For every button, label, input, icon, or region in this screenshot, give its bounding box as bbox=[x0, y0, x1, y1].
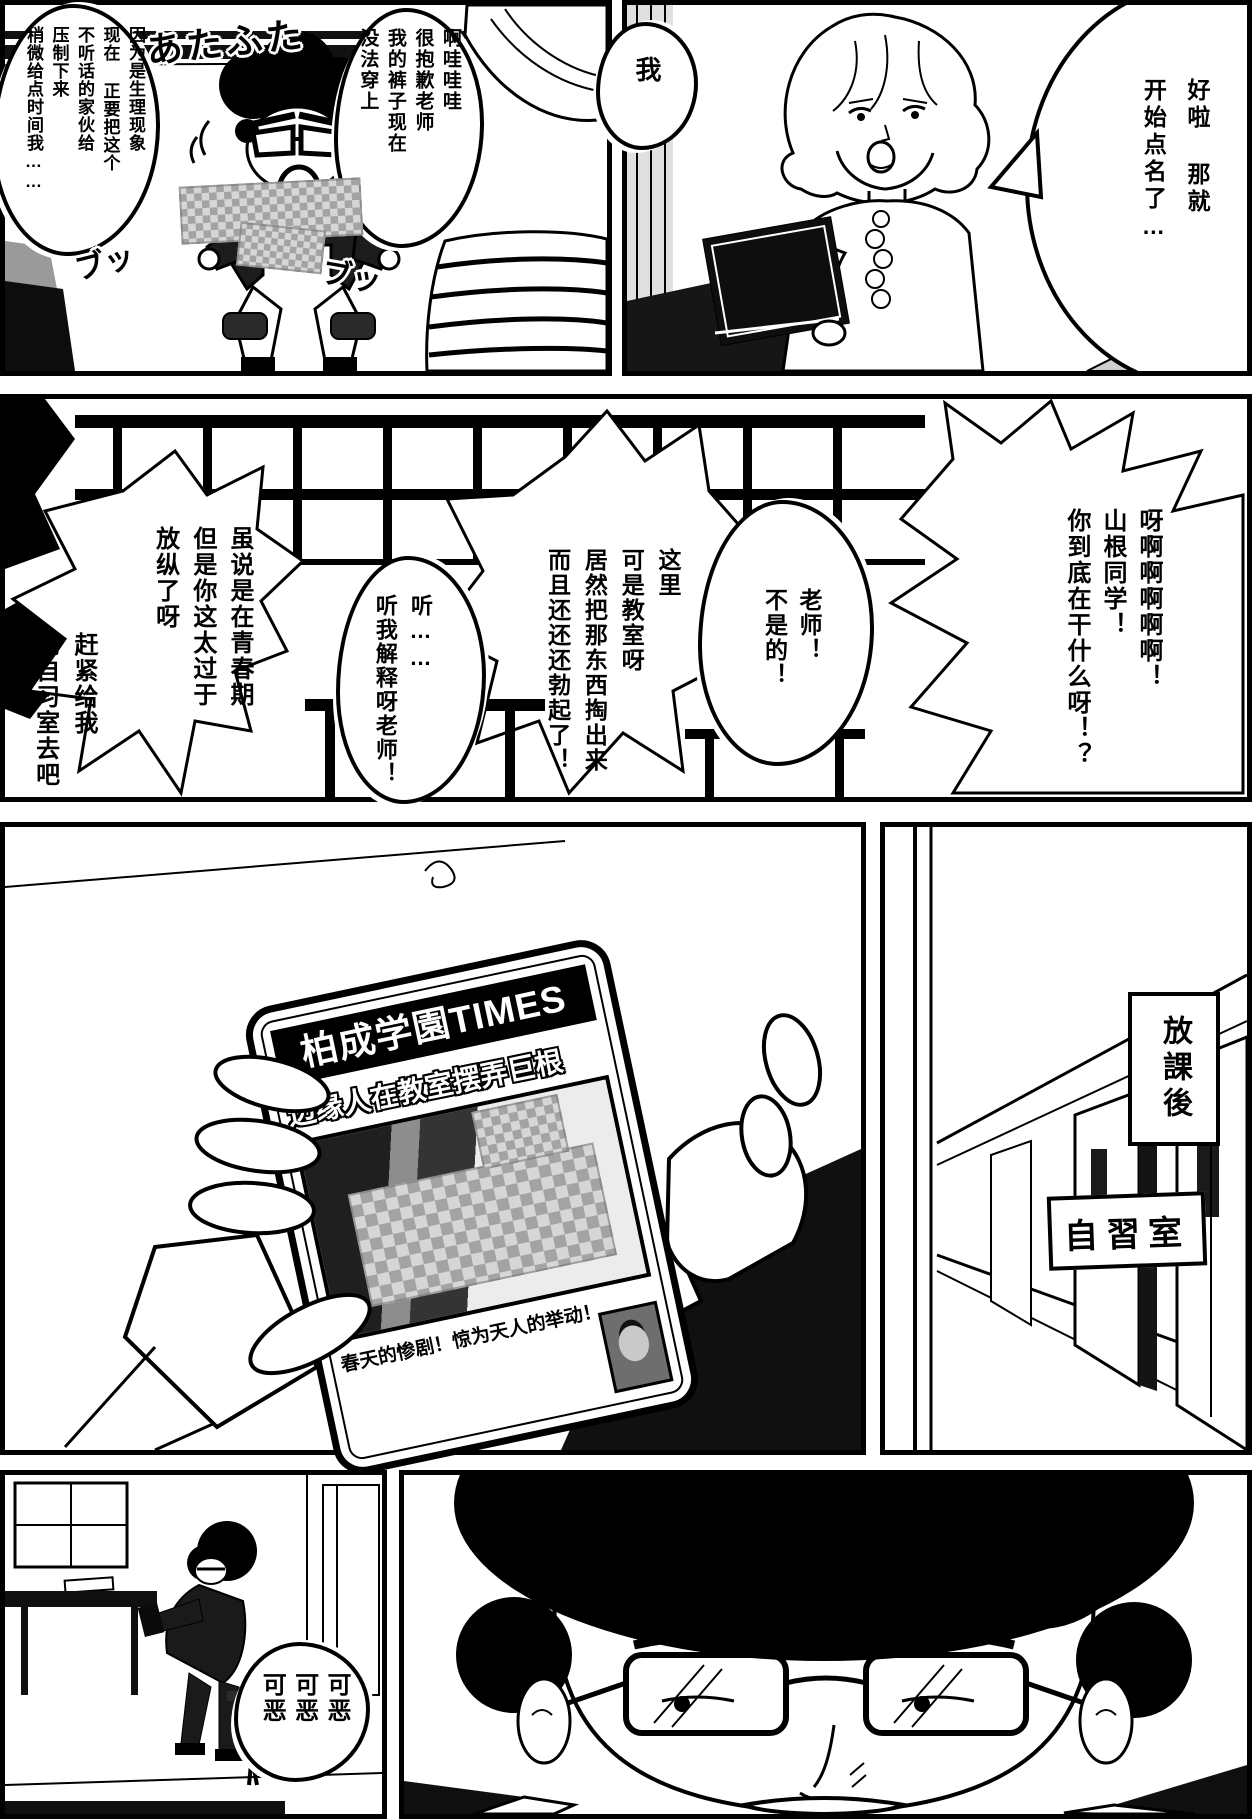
after-school-caption-text: 放課後 bbox=[1152, 1015, 1196, 1123]
denial-text: 老师！ 不是的！ bbox=[752, 588, 826, 738]
curse-text: 可恶 可恶 可恶 bbox=[248, 1672, 352, 1748]
plea-text: 听…… 听我解释呀老师！ bbox=[360, 594, 438, 804]
teacher-speech-text: 好啦 那就 开始点名了… bbox=[1118, 78, 1218, 338]
order-text: 赶紧给我 到自习室去吧 bbox=[20, 632, 102, 798]
glasses-face-illustration bbox=[404, 1475, 1247, 1814]
study-room-sign: 自習室 bbox=[1047, 1191, 1207, 1270]
apology-text: 啊哇哇哇 很抱歉老师 我的裤子现在 没法穿上 bbox=[350, 28, 464, 228]
accusation-text: 这里 可是教室呀 居然把那东西掏出来 而且还还还勃起了！ bbox=[532, 548, 686, 800]
phone-screen: 柏成学園TIMES 边缘人在教室摆弄巨根 春天的惨剧！惊为天人的举动！ bbox=[258, 952, 686, 1461]
thought-text: 因为是生理现象 现在 正要把这个 不听话的家伙给 压制下来 稍微给点时间我…… bbox=[12, 26, 148, 236]
lecture-text: 虽说是在青春期 但是你这太过于 放纵了呀 bbox=[140, 526, 258, 736]
censor-mosaic-small bbox=[236, 222, 326, 275]
panel-face-closeup bbox=[399, 1470, 1252, 1819]
scream-text: 呀啊啊啊啊啊！ 山根同学！ 你到底在干什么呀！？ bbox=[1054, 508, 1166, 818]
after-school-caption-box: 放課後 bbox=[1128, 992, 1220, 1146]
news-thumbnail bbox=[598, 1301, 674, 1394]
manga-page: 因为是生理现象 现在 正要把这个 不听话的家伙给 压制下来 稍微给点时间我…… … bbox=[0, 0, 1252, 1819]
stammer-text: 我 bbox=[626, 56, 666, 106]
study-room-sign-text: 自習室 bbox=[1063, 1204, 1191, 1257]
